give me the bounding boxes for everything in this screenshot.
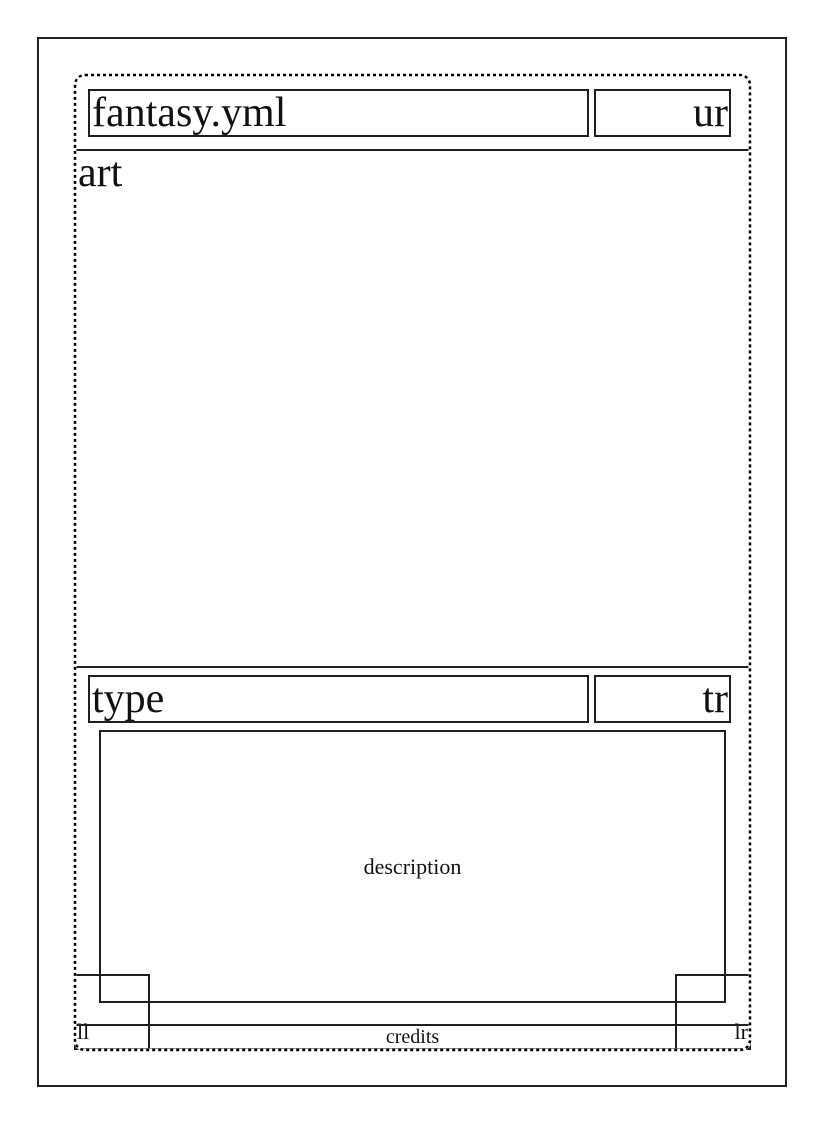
type-right-box: tr	[594, 675, 731, 723]
credits-box: credits	[74, 1024, 751, 1050]
art-box: art	[74, 149, 751, 668]
card-template-proof: fantasy.yml ur art type tr description l…	[0, 0, 825, 1125]
type-right-label: tr	[702, 677, 728, 721]
type-box: type	[88, 675, 589, 723]
title-box: fantasy.yml	[88, 89, 589, 137]
upper-right-label: ur	[693, 91, 728, 135]
art-label: art	[78, 151, 122, 195]
title-label: fantasy.yml	[92, 91, 286, 135]
credits-label: credits	[386, 1026, 439, 1049]
type-label: type	[92, 677, 164, 721]
description-label: description	[364, 854, 462, 880]
description-box: description	[99, 730, 726, 1003]
upper-right-box: ur	[594, 89, 731, 137]
